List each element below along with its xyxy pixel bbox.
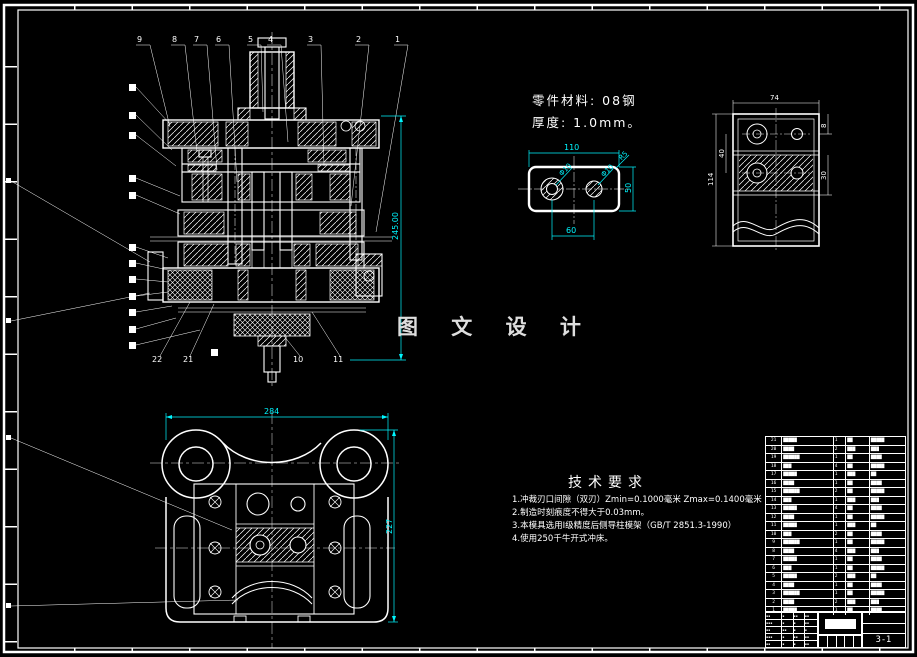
workpiece-part-view: 零件材料: 08钢 厚度: 1.0mm。 110 60 xyxy=(518,93,642,240)
part-height-dim: 50 xyxy=(624,183,633,193)
die-plate xyxy=(178,242,364,268)
part-qty: 1 xyxy=(833,582,846,590)
part-no: 7 xyxy=(766,556,781,564)
signature-row: ▪▪▪ ▪ ▪ ▪▪ xyxy=(766,619,817,626)
plan-view-die-base xyxy=(150,412,400,648)
part-material: ▇▇ xyxy=(845,556,869,564)
part-hole-left-dim: Φ10 xyxy=(558,162,574,178)
parts-list-row: 4 ▇▇▇▇ 1 ▇▇ ▇▇▇▇ xyxy=(766,581,905,590)
balloon-number: 6 xyxy=(216,35,221,44)
side-height-dim: 114 xyxy=(707,172,715,186)
side-step-dim: 8 xyxy=(820,124,828,128)
part-material: ▇▇▇ xyxy=(845,548,869,556)
parts-list-row: 19 ▇▇▇▇▇▇ 1 ▇▇ ▇▇▇▇ xyxy=(766,453,905,462)
part-material-note: 零件材料: 08钢 xyxy=(532,93,637,108)
part-material: ▇▇▇ xyxy=(845,497,869,505)
parts-list-row: 14 ▇▇▇ 1 ▇▇▇ ▇▇▇ xyxy=(766,496,905,505)
part-material: ▇▇ xyxy=(845,437,869,445)
watermark-text: 图 文 设 计 xyxy=(397,315,594,339)
part-name: ▇▇▇ xyxy=(781,531,832,539)
part-qty: 4 xyxy=(833,505,846,513)
part-hole-right-dim: Φ10 xyxy=(600,163,616,179)
part-name: ▇▇▇▇▇▇ xyxy=(781,454,832,462)
technical-requirements: 技术要求 1.冲裁刃口间隙（双刃）Zmin=0.1000毫米 Zmax=0.14… xyxy=(512,475,762,544)
part-name: ▇▇▇ xyxy=(781,463,832,471)
part-qty: 1 xyxy=(833,437,846,445)
part-qty: 4 xyxy=(833,463,846,471)
part-hole-span-dim: 60 xyxy=(566,226,576,235)
balloon-number: 9 xyxy=(137,35,142,44)
part-standard: ▇▇▇▇▇ xyxy=(869,539,905,547)
part-standard: ▇▇▇ xyxy=(869,446,905,454)
part-material: ▇▇▇ xyxy=(845,471,869,479)
parts-list-row: 21 ▇▇▇▇▇ 1 ▇▇ ▇▇▇▇▇ xyxy=(766,437,905,445)
part-name: ▇▇▇▇ xyxy=(781,446,832,454)
margin-balloon-marks xyxy=(6,178,11,608)
part-qty: 1 xyxy=(833,514,846,522)
part-material: ▇▇ xyxy=(845,505,869,513)
part-qty: 1 xyxy=(833,539,846,547)
plan-width-dim: 284 xyxy=(264,407,279,416)
part-name: ▇▇▇▇ xyxy=(781,548,832,556)
signature-row: ▪▪ ▪▪ ▪ ▪ xyxy=(766,626,817,633)
part-qty: 2 xyxy=(833,573,846,581)
punch-holder-stack xyxy=(182,148,360,202)
part-width-dim: 110 xyxy=(564,143,579,152)
parts-list-row: 9 ▇▇▇▇▇▇ 1 ▇▇ ▇▇▇▇▇ xyxy=(766,538,905,547)
part-standard: ▇▇▇ xyxy=(869,548,905,556)
part-material: ▇▇▇ xyxy=(845,599,869,607)
part-standard: ▇▇▇ xyxy=(869,497,905,505)
part-no: 21 xyxy=(766,437,781,445)
parts-list-row: 18 ▇▇▇ 4 ▇▇ ▇▇▇▇▇ xyxy=(766,462,905,471)
front-height-dim-text: 245.00 xyxy=(391,212,400,240)
part-no: 13 xyxy=(766,505,781,513)
part-qty: 2 xyxy=(833,488,846,496)
balloon-number: 4 xyxy=(268,35,273,44)
title-box-strip xyxy=(818,635,862,648)
parts-list-row: 17 ▇▇▇▇▇ 1 ▇▇▇ ▇▇ xyxy=(766,470,905,479)
side-band-dim: 30 xyxy=(820,171,828,180)
part-name: ▇▇▇▇ xyxy=(781,599,832,607)
sig-cell: ▪ xyxy=(793,641,804,647)
part-no: 2 xyxy=(766,599,781,607)
part-standard: ▇▇▇▇▇ xyxy=(869,463,905,471)
part-material: ▇▇ xyxy=(845,531,869,539)
part-material: ▇▇ xyxy=(845,454,869,462)
part-name: ▇▇▇▇▇ xyxy=(781,471,832,479)
part-no: 14 xyxy=(766,497,781,505)
part-qty: 2 xyxy=(833,446,846,454)
balloon-number: 5 xyxy=(248,35,253,44)
part-qty: 4 xyxy=(833,548,846,556)
parts-list-row: 7 ▇▇▇▇▇ 1 ▇▇ ▇▇▇▇ xyxy=(766,555,905,564)
part-qty: 1 xyxy=(833,497,846,505)
part-standard: ▇▇ xyxy=(869,573,905,581)
tech-req-item: 1.冲裁刃口间隙（双刃）Zmin=0.1000毫米 Zmax=0.1400毫米 xyxy=(512,494,762,505)
tech-req-item: 4.使用250千牛开式冲床。 xyxy=(512,533,613,544)
balloon-number: 22 xyxy=(152,355,162,364)
part-name: ▇▇▇▇ xyxy=(781,582,832,590)
part-qty: 1 xyxy=(833,565,846,573)
part-name: ▇▇▇▇▇ xyxy=(781,437,832,445)
part-no: 16 xyxy=(766,480,781,488)
side-hole-offset-dim: 40 xyxy=(718,149,726,158)
tech-req-item: 3.本模具选用Ⅰ级精度后侧导柱模架（GB/T 2851.3-1990） xyxy=(512,520,736,531)
parts-list-row: 15 ▇▇▇▇▇▇ 2 ▇▇ ▇▇▇▇▇ xyxy=(766,487,905,496)
plan-height-dim: 227 xyxy=(385,519,394,534)
part-standard: ▇▇▇▇ xyxy=(869,480,905,488)
tech-req-item: 2.制造时刻痕度不得大于0.03mm。 xyxy=(512,507,649,518)
sig-cell: ▪▪ xyxy=(804,641,817,647)
ejector-stem xyxy=(211,314,310,382)
part-qty: 2 xyxy=(833,599,846,607)
balloon-number: 10 xyxy=(293,355,303,364)
sheet-number: 3-1 xyxy=(863,633,905,647)
part-no: 3 xyxy=(766,590,781,598)
part-material: ▇▇▇ xyxy=(845,522,869,530)
part-name: ▇▇▇▇▇ xyxy=(781,522,832,530)
part-name: ▇▇▇▇ xyxy=(781,480,832,488)
part-no: 15 xyxy=(766,488,781,496)
part-material: ▇▇ xyxy=(845,463,869,471)
side-width-dim: 74 xyxy=(770,94,779,102)
parts-list-row: 10 ▇▇▇ 2 ▇▇ ▇▇▇▇ xyxy=(766,530,905,539)
side-plate-view xyxy=(712,100,832,252)
signature-row: ▪▪ ▪ ▪ ▪▪ xyxy=(766,640,817,647)
part-no: 12 xyxy=(766,514,781,522)
stripper-plate xyxy=(150,210,392,241)
part-standard: ▇▇▇▇ xyxy=(869,556,905,564)
parts-list-row: 6 ▇▇▇ 1 ▇▇ ▇▇▇▇▇ xyxy=(766,564,905,573)
balloon-number: 21 xyxy=(183,355,193,364)
upper-plate xyxy=(163,120,379,148)
part-material: ▇▇ xyxy=(845,480,869,488)
title-block-cell xyxy=(863,623,905,634)
part-standard: ▇▇▇▇ xyxy=(869,454,905,462)
signature-grid: ▪▪ ▪ ▪▪ ▪▪ ▪▪▪ ▪ ▪ ▪▪ ▪▪ ▪▪ ▪ ▪ ▪▪▪ ▪ ▪▪… xyxy=(765,612,818,648)
part-no: 18 xyxy=(766,463,781,471)
part-standard: ▇▇▇▇▇ xyxy=(869,514,905,522)
balloon-number: 3 xyxy=(308,35,313,44)
parts-list-row: 20 ▇▇▇▇ 2 ▇▇▇ ▇▇▇ xyxy=(766,445,905,454)
parts-list-row: 13 ▇▇▇▇▇ 4 ▇▇ ▇▇▇▇ xyxy=(766,504,905,513)
balloon-number: 7 xyxy=(194,35,199,44)
part-name: ▇▇▇ xyxy=(781,565,832,573)
part-no: 9 xyxy=(766,539,781,547)
part-standard: ▇▇ xyxy=(869,471,905,479)
sig-cell: ▪ xyxy=(781,641,792,647)
part-no: 17 xyxy=(766,471,781,479)
part-no: 4 xyxy=(766,582,781,590)
parts-list-row: 3 ▇▇▇▇▇▇ 1 ▇▇ ▇▇▇▇▇ xyxy=(766,589,905,598)
part-material: ▇▇ xyxy=(845,539,869,547)
part-no: 11 xyxy=(766,522,781,530)
part-name: ▇▇▇ xyxy=(781,497,832,505)
balloon-number: 8 xyxy=(172,35,177,44)
part-qty: 1 xyxy=(833,522,846,530)
title-box xyxy=(818,612,862,635)
part-qty: 1 xyxy=(833,556,846,564)
part-qty: 1 xyxy=(833,471,846,479)
part-thickness-note: 厚度: 1.0mm。 xyxy=(532,115,642,130)
parts-list-row: 12 ▇▇▇▇ 1 ▇▇ ▇▇▇▇▇ xyxy=(766,513,905,522)
part-qty: 1 xyxy=(833,480,846,488)
part-name: ▇▇▇▇▇ xyxy=(781,573,832,581)
part-standard: ▇▇▇▇▇ xyxy=(869,437,905,445)
part-standard: ▇▇▇▇▇ xyxy=(869,488,905,496)
part-name: ▇▇▇▇ xyxy=(781,514,832,522)
part-standard: ▇▇ xyxy=(869,522,905,530)
sig-cell: ▪▪ xyxy=(766,641,781,647)
balloon-number: 11 xyxy=(333,355,343,364)
part-name: ▇▇▇▇▇▇ xyxy=(781,488,832,496)
part-material: ▇▇▇ xyxy=(845,446,869,454)
balloon-number: 1 xyxy=(395,35,400,44)
parts-list-row: 16 ▇▇▇▇ 1 ▇▇ ▇▇▇▇ xyxy=(766,479,905,488)
parts-list-row: 8 ▇▇▇▇ 4 ▇▇▇ ▇▇▇ xyxy=(766,547,905,556)
part-standard: ▇▇▇ xyxy=(869,599,905,607)
parts-list-row: 2 ▇▇▇▇ 2 ▇▇▇ ▇▇▇ xyxy=(766,598,905,607)
signature-row: ▪▪▪ ▪ ▪▪ ▪▪ xyxy=(766,633,817,640)
part-standard: ▇▇▇▇▇ xyxy=(869,590,905,598)
part-material: ▇▇ xyxy=(845,514,869,522)
part-material: ▇▇ xyxy=(845,582,869,590)
part-no: 10 xyxy=(766,531,781,539)
part-no: 19 xyxy=(766,454,781,462)
part-material: ▇▇ xyxy=(845,590,869,598)
parts-list-row: 5 ▇▇▇▇▇ 2 ▇▇▇ ▇▇ xyxy=(766,572,905,581)
part-standard: ▇▇▇▇ xyxy=(869,582,905,590)
part-name: ▇▇▇▇▇ xyxy=(781,556,832,564)
part-qty: 1 xyxy=(833,454,846,462)
part-no: 6 xyxy=(766,565,781,573)
part-material: ▇▇▇ xyxy=(845,573,869,581)
main-assembly-section-view xyxy=(129,32,408,388)
part-material: ▇▇ xyxy=(845,565,869,573)
tech-req-title: 技术要求 xyxy=(568,475,648,491)
parts-list-table: 21 ▇▇▇▇▇ 1 ▇▇ ▇▇▇▇▇ 20 ▇▇▇▇ 2 ▇▇▇ ▇▇▇ 19… xyxy=(765,436,906,612)
part-qty: 1 xyxy=(833,590,846,598)
part-name: ▇▇▇▇▇ xyxy=(781,505,832,513)
part-qty: 2 xyxy=(833,531,846,539)
part-material: ▇▇ xyxy=(845,488,869,496)
redacted-title-block xyxy=(825,619,856,629)
parts-list-row: 11 ▇▇▇▇▇ 1 ▇▇▇ ▇▇ xyxy=(766,521,905,530)
part-standard: ▇▇▇▇ xyxy=(869,531,905,539)
part-name: ▇▇▇▇▇▇ xyxy=(781,539,832,547)
balloon-number: 2 xyxy=(356,35,361,44)
part-no: 20 xyxy=(766,446,781,454)
part-standard: ▇▇▇▇ xyxy=(869,505,905,513)
part-name: ▇▇▇▇▇▇ xyxy=(781,590,832,598)
part-no: 5 xyxy=(766,573,781,581)
drawing-sheet: 9 8 7 6 5 4 3 2 1 22 21 10 11 245.00 零件材… xyxy=(0,0,917,657)
part-no: 8 xyxy=(766,548,781,556)
part-standard: ▇▇▇▇▇ xyxy=(869,565,905,573)
title-block-right-column: 3-1 xyxy=(862,612,906,648)
title-block-cell xyxy=(863,613,905,623)
